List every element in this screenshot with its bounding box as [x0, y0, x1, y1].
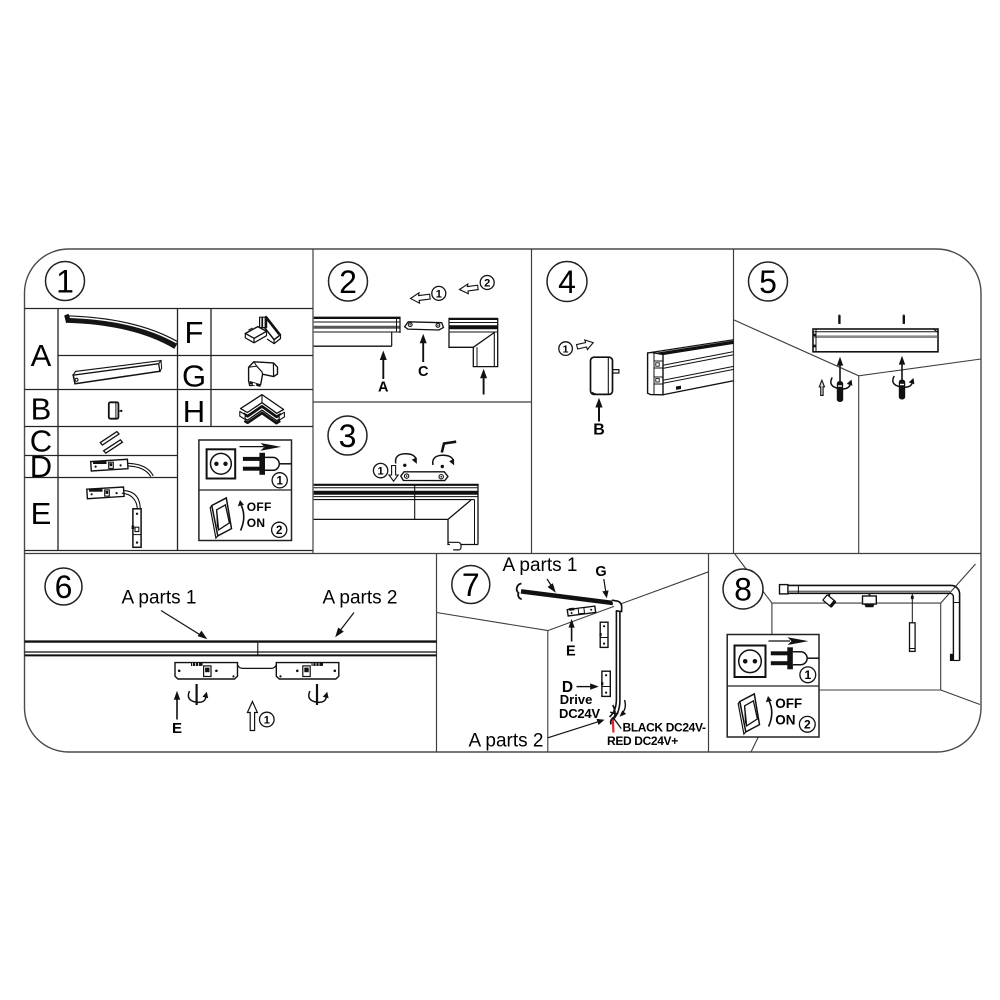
- svg-text:C: C: [418, 364, 429, 380]
- svg-text:2: 2: [804, 718, 811, 732]
- svg-text:1: 1: [264, 715, 270, 727]
- svg-text:B: B: [593, 422, 605, 439]
- svg-text:ON: ON: [247, 516, 266, 530]
- svg-text:A parts 1: A parts 1: [503, 555, 578, 576]
- svg-text:RED DC24V+: RED DC24V+: [607, 734, 678, 748]
- svg-text:B: B: [31, 392, 52, 427]
- svg-text:1: 1: [563, 344, 569, 356]
- svg-text:1: 1: [276, 475, 283, 487]
- svg-text:F: F: [185, 315, 204, 350]
- svg-text:G: G: [182, 359, 206, 394]
- svg-text:OFF: OFF: [775, 696, 802, 711]
- svg-text:3: 3: [339, 418, 357, 454]
- svg-text:2: 2: [339, 264, 357, 300]
- svg-text:Drive: Drive: [560, 692, 593, 707]
- svg-text:1: 1: [804, 668, 811, 682]
- svg-text:5: 5: [759, 264, 777, 300]
- svg-text:2: 2: [484, 277, 490, 289]
- svg-text:6: 6: [55, 569, 73, 605]
- svg-text:D: D: [30, 449, 52, 484]
- svg-text:1: 1: [378, 466, 384, 478]
- svg-text:A parts 2: A parts 2: [323, 588, 398, 609]
- svg-text:A: A: [378, 380, 389, 396]
- svg-text:2: 2: [276, 525, 282, 537]
- svg-text:A: A: [31, 338, 52, 373]
- svg-text:E: E: [172, 720, 182, 737]
- svg-text:1: 1: [436, 288, 442, 300]
- svg-text:ON: ON: [775, 713, 795, 728]
- svg-text:7: 7: [462, 567, 480, 603]
- svg-text:OFF: OFF: [247, 500, 272, 514]
- svg-text:BLACK DC24V-: BLACK DC24V-: [623, 721, 706, 735]
- svg-text:E: E: [566, 644, 576, 660]
- svg-text:1: 1: [56, 264, 74, 300]
- svg-text:4: 4: [558, 264, 576, 300]
- svg-text:E: E: [31, 496, 52, 531]
- svg-text:A parts 1: A parts 1: [122, 588, 197, 609]
- svg-text:8: 8: [734, 572, 752, 608]
- svg-text:H: H: [183, 394, 205, 429]
- svg-text:G: G: [595, 564, 606, 580]
- svg-text:A parts 2: A parts 2: [469, 731, 544, 752]
- svg-text:DC24V: DC24V: [559, 706, 600, 721]
